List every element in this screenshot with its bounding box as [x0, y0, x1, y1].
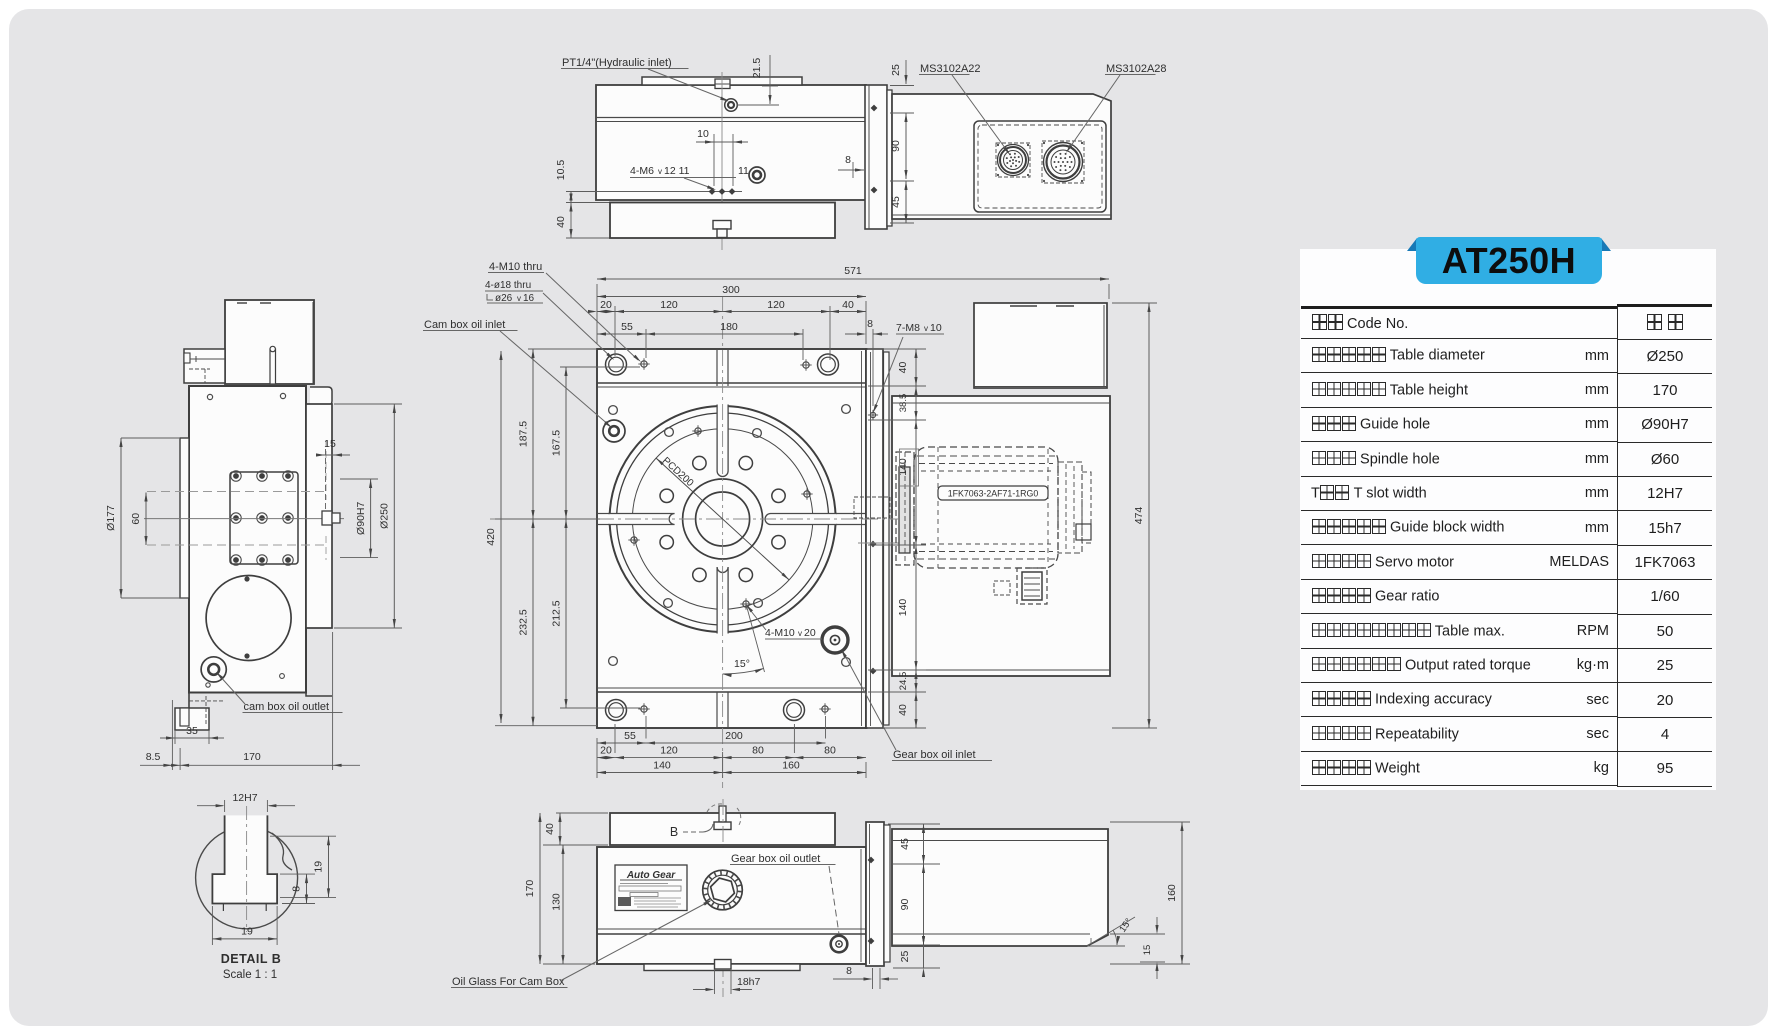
- svg-text:120: 120: [660, 745, 678, 757]
- svg-text:160: 160: [782, 760, 800, 772]
- svg-text:Gear box oil outlet: Gear box oil outlet: [731, 853, 820, 865]
- svg-text:12H7: 12H7: [232, 792, 257, 804]
- svg-text:10.5: 10.5: [555, 160, 567, 181]
- svg-text:16: 16: [523, 293, 535, 304]
- svg-text:35: 35: [186, 725, 198, 737]
- svg-text:180: 180: [720, 321, 738, 333]
- svg-text:40: 40: [897, 704, 909, 716]
- svg-text:v: v: [658, 167, 662, 176]
- svg-text:10: 10: [930, 322, 942, 334]
- svg-text:4-ø18 thru: 4-ø18 thru: [485, 280, 531, 291]
- svg-text:120: 120: [660, 299, 678, 311]
- svg-text:Oil Glass For Cam Box: Oil Glass For Cam Box: [452, 976, 565, 988]
- svg-text:474: 474: [1133, 507, 1145, 525]
- svg-text:45: 45: [890, 196, 902, 208]
- svg-text:80: 80: [752, 745, 764, 757]
- svg-text:18h7: 18h7: [737, 976, 761, 988]
- svg-text:12 11: 12 11: [664, 165, 690, 177]
- svg-text:15: 15: [324, 438, 336, 450]
- svg-text:120: 120: [767, 299, 785, 311]
- svg-text:4-M10: 4-M10: [765, 627, 795, 639]
- svg-text:PT1/4"(Hydraulic inlet): PT1/4"(Hydraulic inlet): [562, 57, 672, 69]
- svg-text:38.5: 38.5: [898, 394, 909, 413]
- svg-text:420: 420: [485, 528, 497, 546]
- svg-text:300: 300: [722, 284, 740, 296]
- svg-text:MS3102A22: MS3102A22: [920, 63, 981, 75]
- svg-text:55: 55: [621, 321, 633, 333]
- svg-text:Ø90H7: Ø90H7: [355, 502, 367, 535]
- svg-text:140: 140: [653, 760, 671, 772]
- svg-text:90: 90: [890, 140, 902, 152]
- svg-text:v: v: [798, 629, 802, 638]
- svg-text:571: 571: [844, 265, 862, 277]
- svg-text:19: 19: [313, 861, 325, 873]
- svg-text:140: 140: [897, 599, 909, 617]
- svg-text:10: 10: [697, 128, 709, 140]
- svg-text:167.5: 167.5: [551, 430, 563, 456]
- svg-text:45: 45: [899, 838, 911, 850]
- svg-text:v: v: [924, 324, 928, 333]
- svg-text:Ø250: Ø250: [379, 503, 391, 529]
- svg-text:MS3102A28: MS3102A28: [1106, 63, 1167, 75]
- svg-text:v: v: [517, 294, 521, 303]
- svg-text:4-M6: 4-M6: [630, 165, 654, 177]
- svg-text:200: 200: [725, 730, 743, 742]
- svg-text:8.5: 8.5: [146, 751, 161, 763]
- svg-text:Scale 1 : 1: Scale 1 : 1: [223, 969, 277, 981]
- svg-text:ø26: ø26: [495, 293, 513, 304]
- svg-text:212.5: 212.5: [551, 600, 563, 626]
- svg-text:Ø177: Ø177: [105, 505, 117, 531]
- svg-text:15: 15: [1142, 945, 1153, 956]
- svg-text:8: 8: [845, 154, 851, 166]
- svg-text:25: 25: [899, 951, 911, 963]
- svg-text:20: 20: [600, 299, 612, 311]
- svg-text:8: 8: [846, 965, 852, 977]
- svg-text:130: 130: [551, 893, 563, 911]
- svg-text:90: 90: [899, 899, 911, 911]
- svg-text:21.5: 21.5: [751, 58, 763, 79]
- svg-text:19: 19: [241, 926, 253, 938]
- svg-text:Auto Gear: Auto Gear: [626, 870, 676, 881]
- svg-text:60: 60: [130, 513, 142, 525]
- svg-text:25: 25: [890, 64, 902, 76]
- svg-text:140: 140: [897, 458, 909, 476]
- svg-text:40: 40: [897, 362, 909, 374]
- svg-text:55: 55: [624, 730, 636, 742]
- svg-text:7-M8: 7-M8: [896, 322, 920, 334]
- svg-text:40: 40: [555, 216, 567, 228]
- svg-text:1FK7063-2AF71-1RG0: 1FK7063-2AF71-1RG0: [948, 489, 1039, 499]
- svg-text:4-M10 thru: 4-M10 thru: [489, 261, 542, 273]
- svg-text:160: 160: [1166, 884, 1178, 902]
- svg-text:80: 80: [824, 745, 836, 757]
- svg-text:187.5: 187.5: [518, 421, 530, 447]
- svg-text:20: 20: [804, 627, 816, 639]
- svg-text:B: B: [670, 825, 678, 839]
- svg-text:15°: 15°: [734, 658, 750, 670]
- svg-text:170: 170: [243, 751, 261, 763]
- svg-text:8: 8: [867, 318, 873, 330]
- svg-text:11: 11: [738, 165, 749, 177]
- svg-text:cam box oil outlet: cam box oil outlet: [244, 701, 330, 713]
- svg-text:24.5: 24.5: [898, 672, 909, 691]
- svg-text:Cam box oil inlet: Cam box oil inlet: [424, 319, 505, 331]
- svg-text:170: 170: [524, 880, 536, 898]
- svg-text:232.5: 232.5: [518, 609, 530, 635]
- svg-text:40: 40: [842, 299, 854, 311]
- svg-text:20: 20: [600, 745, 612, 757]
- svg-text:40: 40: [544, 823, 556, 835]
- svg-text:8: 8: [291, 886, 303, 892]
- svg-text:DETAIL B: DETAIL B: [221, 952, 281, 966]
- svg-text:Gear box oil inlet: Gear box oil inlet: [893, 749, 976, 761]
